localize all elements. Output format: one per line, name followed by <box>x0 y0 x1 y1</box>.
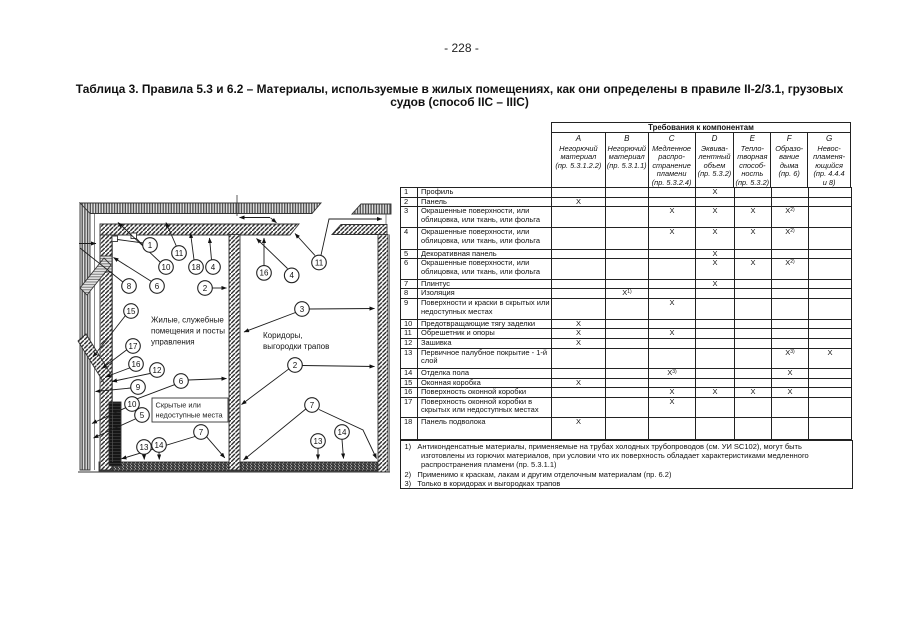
svg-text:Жилые, служебные: Жилые, служебные <box>151 316 224 325</box>
svg-text:11: 11 <box>175 249 184 258</box>
svg-text:помещения и посты: помещения и посты <box>151 327 225 336</box>
svg-text:6: 6 <box>155 282 160 291</box>
svg-text:12: 12 <box>153 366 162 375</box>
svg-text:2: 2 <box>203 284 208 293</box>
svg-text:8: 8 <box>127 282 132 291</box>
svg-text:недоступные места: недоступные места <box>156 411 224 420</box>
svg-text:1: 1 <box>148 241 153 250</box>
svg-text:18: 18 <box>192 263 201 272</box>
svg-text:17: 17 <box>129 342 138 351</box>
svg-text:4: 4 <box>289 271 294 280</box>
svg-text:5: 5 <box>140 411 145 420</box>
svg-text:13: 13 <box>140 443 149 452</box>
svg-text:управления: управления <box>151 338 195 347</box>
svg-text:Коридоры,: Коридоры, <box>263 331 303 340</box>
svg-text:13: 13 <box>314 437 323 446</box>
svg-text:11: 11 <box>315 258 324 267</box>
svg-text:16: 16 <box>260 269 269 278</box>
svg-text:9: 9 <box>136 383 141 392</box>
svg-text:4: 4 <box>211 263 216 272</box>
svg-text:15: 15 <box>127 307 136 316</box>
svg-text:10: 10 <box>128 400 137 409</box>
svg-text:16: 16 <box>132 360 141 369</box>
svg-text:3: 3 <box>300 305 305 314</box>
svg-text:14: 14 <box>338 428 347 437</box>
svg-text:Скрытые или: Скрытые или <box>156 401 201 410</box>
svg-text:14: 14 <box>155 441 164 450</box>
svg-text:2: 2 <box>293 361 298 370</box>
svg-text:выгородки трапов: выгородки трапов <box>263 342 329 351</box>
svg-text:6: 6 <box>179 377 184 386</box>
svg-text:7: 7 <box>199 428 204 437</box>
svg-text:10: 10 <box>162 263 171 272</box>
svg-text:7: 7 <box>310 401 315 410</box>
